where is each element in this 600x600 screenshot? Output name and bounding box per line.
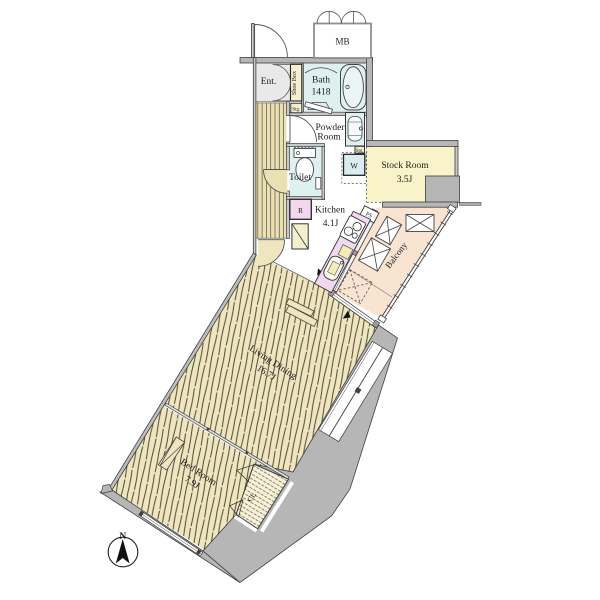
svg-text:W: W [350, 161, 358, 170]
svg-text:Kitchen: Kitchen [315, 206, 345, 216]
svg-text:R: R [298, 207, 303, 215]
svg-text:Shoe Box: Shoe Box [291, 70, 298, 95]
svg-text:1418: 1418 [312, 88, 331, 98]
svg-text:Bath: Bath [312, 76, 330, 86]
svg-text:Powder: Powder [315, 123, 345, 133]
svg-text:4.1J: 4.1J [323, 219, 339, 229]
svg-text:3.5J: 3.5J [397, 175, 413, 185]
svg-text:Stg.: Stg. [292, 106, 300, 112]
svg-text:N: N [119, 532, 126, 542]
svg-text:Toilet: Toilet [289, 173, 311, 183]
svg-text:Stg.: Stg. [356, 149, 364, 154]
svg-text:Room: Room [317, 133, 341, 143]
svg-text:Ent.: Ent. [261, 77, 277, 87]
svg-text:Stock Room: Stock Room [381, 161, 429, 171]
svg-text:MB: MB [335, 37, 349, 47]
